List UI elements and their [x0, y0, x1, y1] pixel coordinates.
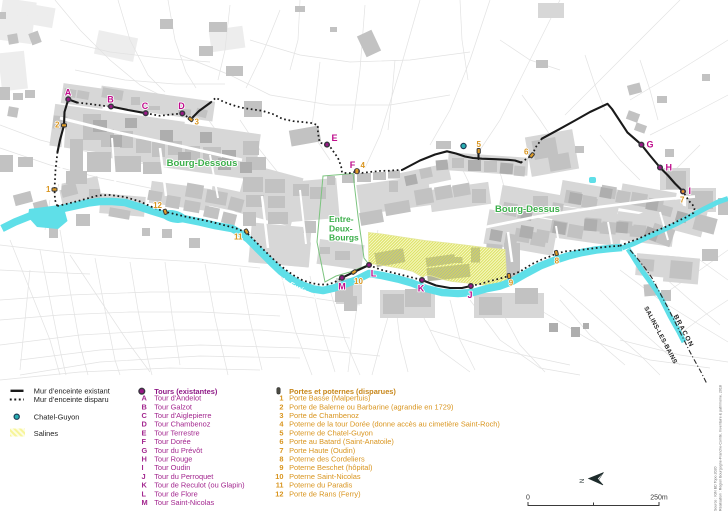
svg-text:G: G	[647, 140, 654, 150]
svg-text:Porte Haute (Oudin): Porte Haute (Oudin)	[289, 446, 355, 455]
svg-text:C: C	[142, 101, 149, 111]
svg-text:Réalisation : Région Bourgogne: Réalisation : Région Bourgogne-Franche-C…	[719, 385, 723, 511]
svg-text:0: 0	[526, 495, 530, 502]
svg-text:G: G	[142, 446, 148, 455]
svg-text:F: F	[350, 160, 356, 170]
svg-text:B: B	[142, 402, 147, 411]
svg-text:Poterne de la tour Dorée (donn: Poterne de la tour Dorée (donne accès au…	[289, 420, 500, 429]
svg-text:Tour d'Andelot: Tour d'Andelot	[154, 394, 201, 403]
svg-text:Chatel-Guyon: Chatel-Guyon	[34, 412, 80, 421]
svg-text:H: H	[666, 163, 673, 173]
svg-text:I: I	[689, 186, 692, 196]
svg-text:5: 5	[279, 428, 283, 437]
svg-text:Bourgs: Bourgs	[329, 233, 359, 243]
svg-text:Entre-: Entre-	[329, 214, 354, 224]
svg-text:Poterne des Cordeliers: Poterne des Cordeliers	[289, 455, 365, 464]
svg-text:I: I	[142, 463, 144, 472]
svg-text:Tour du Prévôt: Tour du Prévôt	[154, 446, 202, 455]
svg-text:3: 3	[279, 411, 283, 420]
svg-text:K: K	[142, 481, 148, 490]
svg-text:Tour Oudin: Tour Oudin	[154, 463, 190, 472]
svg-text:Mur d’enceinte disparu: Mur d’enceinte disparu	[34, 395, 109, 404]
svg-text:J: J	[467, 290, 472, 300]
svg-text:6: 6	[279, 437, 283, 446]
svg-text:L: L	[142, 489, 147, 498]
svg-text:H: H	[142, 455, 147, 464]
svg-text:Salines: Salines	[34, 429, 59, 438]
svg-text:7: 7	[279, 446, 283, 455]
svg-text:M: M	[338, 282, 346, 292]
svg-text:11: 11	[234, 233, 243, 242]
svg-text:Porte de Balerne ou Barbarine: Porte de Balerne ou Barbarine (agrandie …	[289, 402, 453, 411]
svg-text:Tour Dorée: Tour Dorée	[154, 437, 191, 446]
svg-text:Porte de Rans (Ferry): Porte de Rans (Ferry)	[289, 489, 360, 498]
svg-text:Tour de Flore: Tour de Flore	[154, 489, 198, 498]
svg-text:F: F	[142, 437, 147, 446]
svg-text:250m: 250m	[650, 495, 668, 502]
svg-text:1: 1	[46, 185, 51, 194]
svg-text:4: 4	[361, 161, 366, 170]
svg-text:12: 12	[153, 201, 162, 210]
svg-text:Tour Rouge: Tour Rouge	[154, 455, 192, 464]
svg-text:Porte au Batard (Saint-Anatoil: Porte au Batard (Saint-Anatoile)	[289, 437, 394, 446]
svg-text:7: 7	[680, 196, 685, 205]
svg-text:K: K	[418, 284, 425, 294]
svg-text:Source : IGN BD Topo 2020: Source : IGN BD Topo 2020	[714, 467, 718, 511]
svg-text:Tour Terrestre: Tour Terrestre	[154, 428, 199, 437]
svg-text:B: B	[107, 95, 114, 105]
svg-text:8: 8	[555, 257, 560, 266]
svg-text:10: 10	[275, 472, 283, 481]
svg-text:Poterne Saint-Nicolas: Poterne Saint-Nicolas	[289, 472, 361, 481]
svg-text:8: 8	[279, 455, 283, 464]
svg-text:Tour Chambenoz: Tour Chambenoz	[154, 420, 211, 429]
svg-text:Porte Basse (Malpertuis): Porte Basse (Malpertuis)	[289, 394, 370, 403]
svg-text:9: 9	[279, 463, 283, 472]
svg-text:Porte de Chambenoz: Porte de Chambenoz	[289, 411, 359, 420]
svg-text:Poterne de Chatel-Guyon: Poterne de Chatel-Guyon	[289, 428, 373, 437]
svg-text:2: 2	[279, 402, 283, 411]
svg-text:1: 1	[279, 394, 283, 403]
svg-text:E: E	[142, 428, 147, 437]
svg-text:M: M	[142, 498, 148, 507]
svg-text:Tour Saint-Nicolas: Tour Saint-Nicolas	[154, 498, 214, 507]
svg-text:Mur d’enceinte existant: Mur d’enceinte existant	[34, 386, 110, 395]
svg-text:A: A	[65, 88, 72, 98]
svg-text:J: J	[142, 472, 146, 481]
svg-text:9: 9	[509, 279, 514, 288]
svg-text:C: C	[142, 411, 148, 420]
svg-text:Tour d'Aiglepierre: Tour d'Aiglepierre	[154, 411, 211, 420]
svg-text:D: D	[142, 420, 148, 429]
svg-text:10: 10	[354, 277, 363, 286]
svg-text:N: N	[580, 479, 586, 483]
svg-text:6: 6	[524, 148, 529, 157]
svg-text:A: A	[142, 394, 148, 403]
svg-text:Poterne Beschet (hôpital): Poterne Beschet (hôpital)	[289, 463, 372, 472]
svg-text:Bourg-Dessus: Bourg-Dessus	[495, 204, 560, 215]
svg-text:Bourg-Dessous: Bourg-Dessous	[167, 158, 238, 169]
svg-text:11: 11	[276, 481, 284, 490]
svg-text:L: L	[371, 269, 377, 279]
svg-text:E: E	[332, 133, 338, 143]
svg-text:Poterne du Paradis: Poterne du Paradis	[289, 481, 353, 490]
svg-text:12: 12	[275, 489, 283, 498]
svg-text:Tour Galzot: Tour Galzot	[154, 402, 192, 411]
svg-text:2: 2	[55, 121, 60, 130]
svg-text:Tour du Perroquet: Tour du Perroquet	[154, 472, 213, 481]
svg-text:Tour de Reculot (ou Glapin): Tour de Reculot (ou Glapin)	[154, 481, 244, 490]
svg-text:D: D	[178, 101, 185, 111]
svg-text:5: 5	[476, 140, 481, 149]
svg-text:3: 3	[195, 118, 200, 127]
